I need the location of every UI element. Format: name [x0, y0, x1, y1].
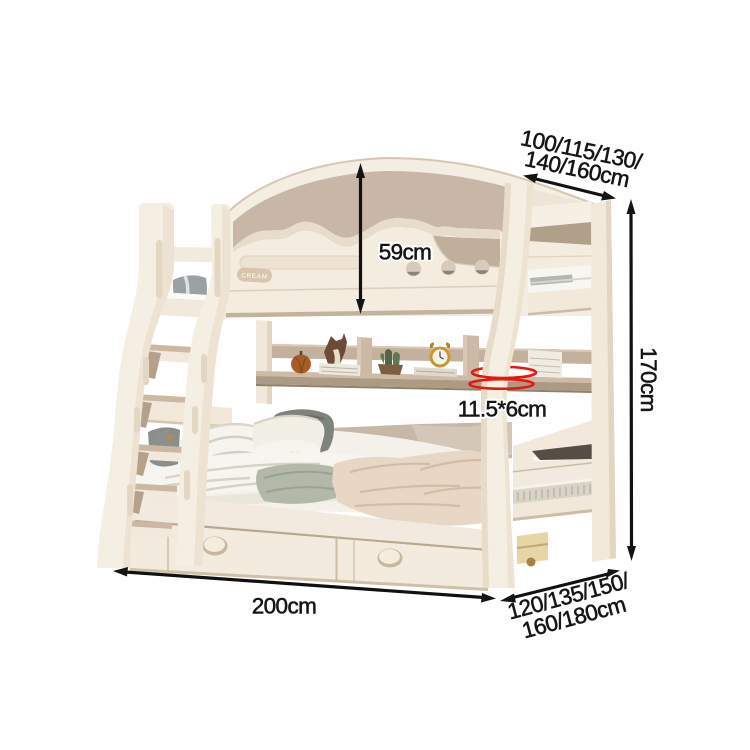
svg-text:CREAM: CREAM — [241, 272, 268, 280]
